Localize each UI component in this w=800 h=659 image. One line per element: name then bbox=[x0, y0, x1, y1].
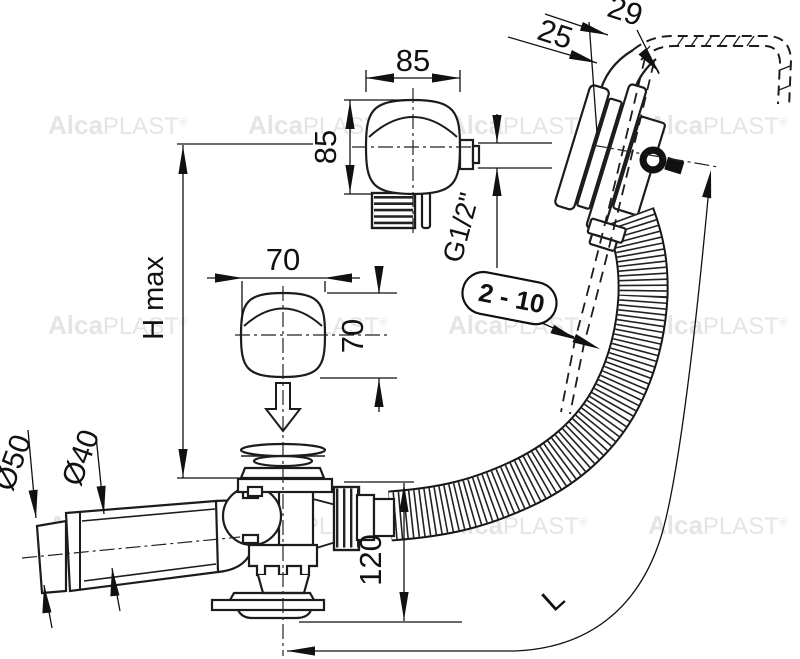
dim-label-hose-length: L bbox=[535, 580, 571, 618]
drain-elbow-outlet-pipe bbox=[37, 501, 254, 593]
alcaplast-watermark: AlcaPLAST® bbox=[448, 110, 587, 140]
dim-label-knob-small-height: 70 bbox=[335, 319, 370, 353]
dim-label-knob-small-width: 70 bbox=[266, 242, 300, 277]
knob-pull-pin bbox=[422, 192, 430, 228]
bath-rim-outline bbox=[633, 36, 791, 108]
technical-drawing-page: AlcaPLAST® AlcaPLAST® AlcaPLAST® AlcaPLA… bbox=[0, 0, 800, 659]
alcaplast-watermark: AlcaPLAST® bbox=[648, 310, 787, 340]
dim-label-drain-height: 120 bbox=[353, 534, 388, 586]
dim-label-h-max: H max bbox=[138, 256, 170, 340]
waste-drain-assembly bbox=[212, 444, 394, 618]
dim-label-overflow-offset-outer: 29 bbox=[603, 0, 647, 33]
technical-drawing-canvas: AlcaPLAST® AlcaPLAST® AlcaPLAST® AlcaPLA… bbox=[0, 0, 800, 659]
dim-label-knob-large-width: 85 bbox=[396, 43, 430, 78]
dim-label-overflow-offset-inner: 25 bbox=[533, 12, 577, 56]
alcaplast-watermark: AlcaPLAST® bbox=[48, 110, 187, 140]
rim-hatch-ticks bbox=[643, 36, 790, 90]
alcaplast-watermark: AlcaPLAST® bbox=[648, 510, 787, 540]
dim-label-thread-size: G1/2" bbox=[437, 189, 485, 265]
alcaplast-watermark: AlcaPLAST® bbox=[648, 110, 787, 140]
knob-cable-port bbox=[460, 140, 473, 169]
dim-label-knob-large-height: 85 bbox=[308, 130, 343, 164]
